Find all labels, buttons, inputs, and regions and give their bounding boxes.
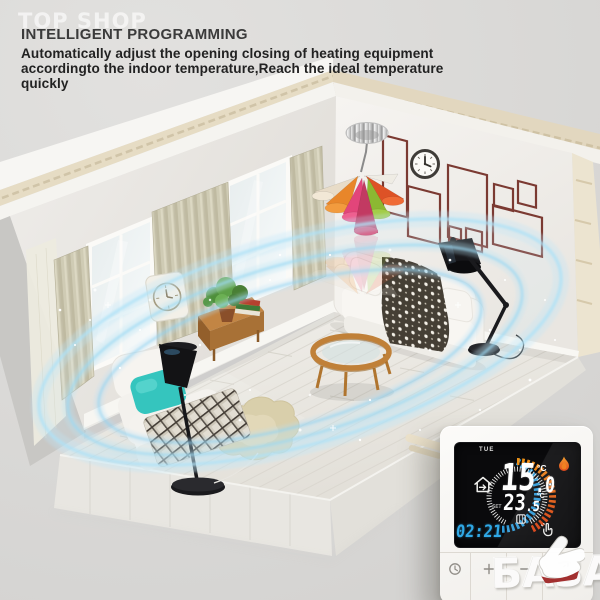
feature-line: Automatically adjust the opening closing…	[21, 47, 443, 62]
clock-button	[440, 553, 470, 600]
bazar-hand-logo	[524, 532, 588, 586]
thermostat-screen: TUE 15.0 °C SET23.5 °C 02:21	[455, 443, 580, 547]
product-image: INTELLIGENT PROGRAMMING Automatically ad…	[0, 0, 600, 600]
wall-clock	[412, 151, 439, 178]
feature-line: quickly	[21, 77, 443, 92]
clock-icon	[448, 562, 462, 576]
watermark-top-shop: TOP SHOP	[18, 9, 147, 33]
feature-line: accordingto the indoor temperature,Reach…	[21, 62, 443, 77]
screen-gloss	[455, 443, 580, 547]
feature-copy: INTELLIGENT PROGRAMMING Automatically ad…	[21, 26, 443, 91]
